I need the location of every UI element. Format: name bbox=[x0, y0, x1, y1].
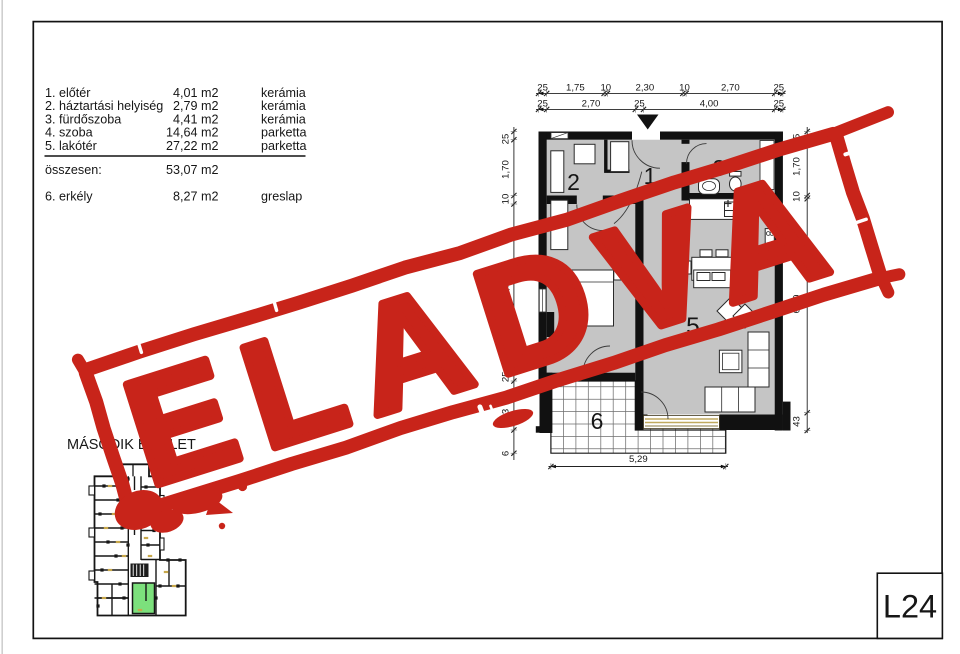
svg-text:25: 25 bbox=[634, 99, 645, 110]
svg-text:6. erkély: 6. erkély bbox=[45, 190, 93, 204]
svg-text:1. előtér: 1. előtér bbox=[45, 86, 91, 100]
svg-text:2. háztartási helyiség: 2. háztartási helyiség bbox=[45, 99, 163, 113]
svg-text:25: 25 bbox=[773, 99, 784, 110]
svg-text:3. fürdőszoba: 3. fürdőszoba bbox=[45, 112, 121, 126]
svg-text:10: 10 bbox=[600, 83, 611, 94]
svg-text:53,07 m2: 53,07 m2 bbox=[166, 163, 219, 177]
svg-text:25: 25 bbox=[537, 83, 548, 94]
svg-text:27,22 m2: 27,22 m2 bbox=[166, 139, 219, 153]
svg-text:2,79 m2: 2,79 m2 bbox=[173, 99, 219, 113]
svg-text:25: 25 bbox=[773, 83, 784, 94]
svg-text:25: 25 bbox=[501, 134, 512, 145]
svg-text:6: 6 bbox=[591, 408, 604, 434]
svg-text:kerámia: kerámia bbox=[261, 112, 306, 126]
svg-text:2,30: 2,30 bbox=[636, 83, 655, 94]
svg-text:L24: L24 bbox=[883, 589, 937, 625]
svg-text:10: 10 bbox=[679, 83, 690, 94]
svg-text:2: 2 bbox=[567, 169, 580, 195]
svg-text:2,70: 2,70 bbox=[721, 83, 740, 94]
svg-text:5. lakótér: 5. lakótér bbox=[45, 139, 97, 153]
svg-text:1,75: 1,75 bbox=[566, 83, 585, 94]
svg-text:6: 6 bbox=[501, 451, 512, 456]
svg-text:25: 25 bbox=[537, 99, 548, 110]
svg-text:8,27 m2: 8,27 m2 bbox=[173, 190, 219, 204]
svg-text:1,70: 1,70 bbox=[501, 160, 512, 179]
svg-text:kerámia: kerámia bbox=[261, 99, 306, 113]
svg-text:4,01 m2: 4,01 m2 bbox=[173, 86, 219, 100]
svg-text:5,29: 5,29 bbox=[629, 454, 648, 465]
svg-text:parketta: parketta bbox=[261, 139, 307, 153]
svg-text:összesen:: összesen: bbox=[45, 163, 102, 177]
svg-text:kerámia: kerámia bbox=[261, 86, 306, 100]
svg-text:4. szoba: 4. szoba bbox=[45, 126, 93, 140]
svg-text:greslap: greslap bbox=[261, 190, 302, 204]
svg-text:4,00: 4,00 bbox=[700, 99, 719, 110]
svg-text:4,41 m2: 4,41 m2 bbox=[173, 112, 219, 126]
svg-text:2,70: 2,70 bbox=[582, 99, 601, 110]
svg-text:10: 10 bbox=[501, 194, 512, 205]
svg-text:43: 43 bbox=[792, 416, 803, 427]
svg-text:parketta: parketta bbox=[261, 126, 307, 140]
svg-text:14,64 m2: 14,64 m2 bbox=[166, 126, 219, 140]
